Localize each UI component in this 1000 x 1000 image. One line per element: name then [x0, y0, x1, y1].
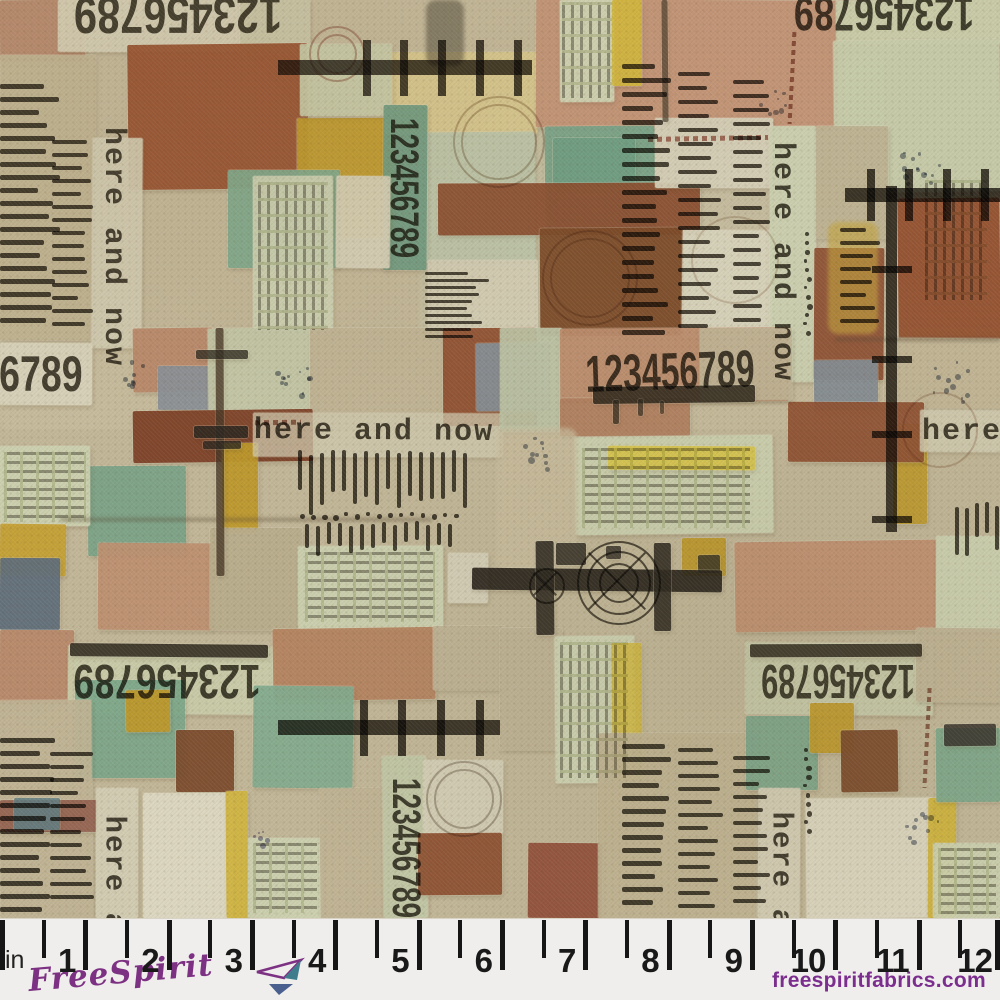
tally-stroke [622, 232, 660, 237]
fabric-patch [936, 536, 1000, 632]
fabric-patch [194, 426, 248, 438]
fabric-patch [240, 0, 310, 55]
fabric-patch [298, 546, 443, 631]
tally-stroke [678, 226, 720, 230]
tally-stroke [622, 900, 653, 905]
tally-stroke [0, 253, 40, 258]
fabric-patch [916, 628, 1000, 703]
tally-stroke [678, 826, 708, 830]
tally-stroke [733, 860, 758, 864]
tally-stroke [364, 451, 368, 497]
tally-stroke [840, 319, 879, 323]
tally-stroke [678, 198, 721, 202]
tally-stroke [678, 852, 715, 856]
tally-dot [377, 514, 382, 519]
tally-stroke [840, 293, 866, 297]
splatter-dot [530, 452, 535, 457]
fabric-patch [228, 170, 340, 268]
splatter-dot [265, 838, 269, 842]
splatter-dot [918, 152, 921, 155]
fine-print-block [925, 180, 987, 300]
tally-stroke [733, 248, 761, 252]
tally-stroke [965, 508, 969, 556]
tally-stroke [678, 212, 718, 216]
fabric-patch [698, 555, 720, 573]
compass-circle [691, 216, 779, 304]
track-tick-icon [476, 700, 484, 756]
track-bar [845, 188, 1000, 202]
tally-dot [388, 513, 393, 518]
fabric-text-stamp: 123456789 [585, 343, 756, 401]
track-tick-icon [400, 40, 408, 96]
fabric-patch [203, 441, 241, 449]
tally-dot [806, 295, 811, 300]
splatter-dot [782, 92, 786, 96]
tally-dot [806, 793, 811, 798]
fabric-patch [418, 833, 502, 895]
track-tick-icon [872, 431, 912, 438]
splatter-dot [950, 384, 956, 390]
splatter-dot [902, 166, 907, 171]
fabric-patch [598, 733, 756, 918]
splatter-dot [131, 380, 135, 384]
tally-stroke [0, 868, 40, 873]
tally-stroke [678, 114, 709, 118]
compass-circle [453, 96, 545, 188]
tally-stroke [331, 450, 335, 492]
fabric-patch [884, 338, 1000, 409]
splatter-dot [966, 369, 970, 373]
tally-stroke [50, 830, 81, 834]
fabric-patch [98, 543, 214, 631]
tally-stroke [678, 142, 713, 146]
ruler-inch-tick [833, 920, 838, 970]
fabric-patch [600, 710, 900, 918]
splatter-dot [916, 168, 920, 172]
fabric-patch [933, 843, 1000, 918]
tally-stroke [622, 887, 663, 892]
tally-stroke [425, 286, 476, 289]
ruler-inch-tick [83, 920, 88, 970]
fabric-patch [788, 402, 924, 463]
fabric-patch [382, 756, 428, 918]
tally-stroke [404, 522, 408, 542]
compass-circle [317, 34, 357, 74]
tally-stroke [733, 80, 764, 84]
tally-dot [311, 515, 316, 520]
splatter-dot [926, 829, 930, 833]
splatter-dot [944, 388, 950, 394]
tally-stroke [678, 813, 723, 817]
tally-stroke [0, 292, 51, 297]
ruler-number: 11 [853, 942, 909, 980]
fabric-patch [297, 118, 394, 238]
tally-stroke [622, 874, 655, 879]
tally-stroke [678, 787, 720, 791]
inch-ruler: in FreeSpirit freespiritfabrics.com 1234… [0, 918, 1000, 1000]
tally-stroke [622, 302, 668, 307]
tally-dot [807, 829, 812, 834]
compass-cross [588, 552, 646, 610]
track-tick-icon [363, 40, 371, 96]
splatter-dot [302, 392, 305, 395]
track-tick-icon [867, 169, 875, 221]
fabric-patch [816, 126, 889, 238]
tally-stroke [840, 280, 872, 284]
track-tick-icon [437, 700, 445, 756]
ruler-inch-tick [667, 920, 672, 970]
fabric-text-stamp: 123456789 [386, 778, 426, 918]
fabric-patch [96, 788, 138, 918]
fabric-print-collage: 1234567891234567891234567891234567894567… [0, 0, 1000, 918]
fabric-patch [560, 327, 789, 403]
tally-stroke [393, 525, 397, 551]
fabric-patch [252, 685, 353, 788]
tally-stroke [733, 164, 762, 168]
tally-stroke [678, 761, 718, 765]
fabric-patch [0, 558, 60, 630]
tally-stroke [419, 452, 423, 501]
tally-stroke [52, 153, 88, 157]
tally-stroke [622, 288, 658, 293]
tally-stroke [733, 220, 770, 224]
splatter-dot [965, 393, 970, 398]
tally-dot [803, 322, 806, 325]
tally-stroke [52, 218, 92, 222]
fabric-text-stamp: here and now [254, 416, 494, 448]
fabric-patch [928, 798, 957, 918]
tally-stroke [50, 752, 93, 756]
tally-stroke [50, 791, 78, 795]
tally-stroke [678, 891, 710, 895]
splatter-dot [141, 364, 145, 368]
tally-stroke [408, 451, 412, 496]
compass-circle [434, 769, 494, 829]
tally-stroke [50, 804, 86, 808]
tally-stroke [320, 453, 324, 506]
fabric-patch [608, 446, 755, 471]
tally-dot [355, 514, 360, 519]
tally-stroke [437, 523, 441, 545]
tally-stroke [0, 266, 47, 271]
tally-stroke [678, 184, 711, 188]
stitch-mark [788, 32, 797, 124]
tally-stroke [733, 756, 770, 760]
fabric-patch [613, 400, 619, 424]
fabric-patch [70, 643, 268, 658]
splatter-dot [946, 378, 950, 382]
splatter-dot [920, 812, 925, 817]
splatter-dot [924, 173, 927, 176]
ruler-inch-tick [417, 920, 422, 970]
tally-stroke [0, 764, 50, 769]
fabric-patch [833, 39, 1000, 193]
tally-stroke [678, 170, 717, 174]
tally-stroke [342, 450, 346, 491]
tally-stroke [50, 843, 82, 847]
tally-stroke [50, 869, 86, 873]
tally-stroke [52, 244, 84, 248]
tally-stroke [415, 521, 419, 540]
fabric-text-stamp: 123456789 [384, 118, 424, 258]
splatter-dot [934, 367, 937, 370]
fabric-patch [91, 138, 142, 348]
tally-stroke [50, 765, 84, 769]
splatter-dot [283, 377, 286, 380]
tally-stroke [733, 150, 763, 154]
splatter-dot [299, 393, 305, 399]
splatter-dot [938, 164, 941, 167]
tally-dot [399, 513, 403, 517]
tally-stroke [622, 783, 659, 788]
splatter-dot [779, 108, 785, 114]
tally-stroke [733, 276, 759, 280]
tally-stroke [0, 751, 40, 756]
fabric-patch [682, 538, 726, 576]
fabric-text-stamp: here and now [767, 142, 797, 382]
tally-stroke [622, 260, 654, 265]
tally-dot [804, 820, 808, 824]
tally-stroke [0, 279, 55, 284]
compass-circle [309, 26, 365, 82]
compass-circle [542, 230, 638, 326]
track-tick-icon [872, 516, 912, 523]
tally-stroke [0, 162, 56, 167]
tally-dot [366, 512, 370, 516]
splatter-dot [544, 461, 549, 466]
fabric-product-image: 1234567891234567891234567891234567894567… [0, 0, 1000, 1000]
fabric-patch [746, 716, 818, 790]
tally-dot [803, 784, 806, 787]
fabric-patch [536, 0, 839, 129]
tally-stroke [622, 106, 653, 111]
splatter-dot [132, 373, 136, 377]
tally-stroke [0, 214, 49, 219]
tally-stroke [622, 861, 662, 866]
tally-stroke [622, 92, 667, 97]
fabric-patch [750, 644, 922, 657]
fine-print-block [305, 552, 435, 622]
tally-stroke [678, 72, 710, 76]
splatter-dot [768, 112, 772, 116]
tally-dot [432, 514, 437, 519]
tally-stroke [425, 335, 473, 338]
track-tick-icon [398, 700, 406, 756]
tally-stroke [955, 507, 959, 554]
tally-stroke [678, 268, 718, 272]
fabric-patch [58, 0, 243, 52]
splatter-dot [911, 840, 916, 845]
fabric-patch [497, 428, 577, 570]
track-tick-icon [981, 169, 989, 221]
tally-stroke [622, 78, 671, 83]
fabric-patch [620, 55, 885, 345]
splatter-dot [523, 444, 528, 449]
track-tick-icon [360, 700, 368, 756]
fabric-patch [216, 328, 225, 576]
fabric-patch [253, 176, 333, 334]
tally-stroke [52, 270, 87, 274]
fabric-patch [661, 0, 668, 122]
track-bar [278, 720, 500, 735]
fabric-patch [319, 788, 394, 918]
tally-stroke [733, 873, 770, 877]
tally-dot [805, 313, 809, 317]
tally-stroke [426, 525, 430, 551]
ruler-number: 3 [186, 942, 242, 980]
fabric-patch [176, 730, 234, 792]
tally-dot [807, 811, 813, 817]
tally-stroke [840, 306, 875, 310]
compass-cross [533, 572, 557, 596]
splatter-dot [911, 157, 915, 161]
fabric-patch [419, 132, 535, 263]
fabric-patch [556, 543, 586, 565]
tally-stroke [448, 524, 452, 548]
tally-stroke [425, 293, 479, 296]
fabric-patch [273, 627, 436, 701]
tally-stroke [338, 523, 342, 546]
tally-stroke [50, 778, 84, 782]
tally-stroke [733, 234, 759, 238]
tally-stroke [733, 834, 767, 838]
fabric-patch [758, 788, 801, 918]
fabric-patch [810, 703, 854, 753]
tally-stroke [452, 450, 456, 492]
splatter-dot [937, 820, 940, 823]
tally-stroke [316, 526, 320, 555]
fine-print-block [258, 182, 328, 330]
splatter-dot [777, 98, 779, 100]
tally-stroke [0, 110, 39, 115]
tally-stroke [733, 899, 766, 903]
tally-stroke [0, 790, 52, 795]
ruler-inch-tick [750, 920, 755, 970]
tally-stroke [622, 316, 653, 321]
tally-dot [805, 250, 810, 255]
tally-stroke [733, 290, 758, 294]
fabric-patch [660, 401, 664, 414]
fabric-patch [426, 0, 464, 66]
track-bar [886, 186, 897, 532]
splatter-dot [130, 384, 135, 389]
fabric-patch [428, 260, 538, 338]
fabric-patch [611, 643, 643, 780]
tally-stroke [0, 881, 43, 886]
fabric-patch [0, 700, 93, 918]
tally-stroke [678, 865, 710, 869]
splatter-dot [916, 167, 919, 170]
tally-stroke [840, 254, 873, 258]
tally-stroke [0, 894, 50, 899]
fabric-text-stamp: 123456789 [74, 0, 282, 40]
tally-stroke [733, 108, 769, 112]
ruler-number: 8 [603, 942, 659, 980]
tally-stroke [430, 452, 434, 499]
splatter-dot [905, 825, 909, 829]
compass-circle [461, 104, 537, 180]
tally-stroke [50, 856, 91, 860]
tally-dot [806, 775, 811, 780]
fabric-patch [0, 343, 92, 406]
track-tick-icon [438, 40, 446, 96]
fabric-patch [433, 626, 505, 690]
splatter-dot [306, 367, 309, 370]
tally-stroke [622, 796, 669, 801]
ruler-number: 1 [19, 942, 75, 980]
fabric-patch [545, 126, 656, 233]
tally-dot [454, 514, 459, 519]
fabric-patch [920, 410, 1000, 452]
tally-stroke [733, 318, 761, 322]
ruler-inch-tick [500, 920, 505, 970]
compass-circle [529, 568, 565, 604]
fabric-patch [560, 398, 690, 437]
tally-stroke [0, 175, 60, 180]
tally-stroke [678, 878, 718, 882]
tally-stroke [995, 506, 999, 549]
fabric-patch [225, 791, 248, 918]
splatter-dot [528, 457, 535, 464]
tally-stroke [678, 839, 718, 843]
tally-stroke [425, 328, 471, 331]
fine-print-block [4, 452, 86, 522]
fabric-patch [574, 435, 773, 536]
tally-stroke [622, 330, 665, 335]
tally-stroke [733, 782, 759, 786]
splatter-dot [262, 831, 264, 833]
fabric-patch [612, 0, 642, 86]
tally-stroke [441, 452, 445, 499]
tally-stroke [425, 321, 482, 324]
tally-stroke [52, 166, 82, 170]
tally-dot [804, 757, 808, 761]
splatter-dot [961, 397, 963, 399]
splatter-dot [280, 381, 284, 385]
splatter-dot [914, 818, 918, 822]
tally-stroke [622, 809, 666, 814]
splatter-dot [773, 110, 779, 116]
tally-stroke [622, 744, 665, 749]
tally-stroke [0, 842, 50, 847]
fabric-patch [835, 338, 1000, 341]
tally-stroke [733, 769, 770, 773]
fabric-patch [654, 543, 671, 631]
tally-stroke [0, 803, 50, 808]
fabric-patch [300, 44, 392, 116]
tally-stroke [0, 907, 42, 912]
tally-stroke [622, 848, 661, 853]
tally-stroke [0, 188, 38, 193]
tally-stroke [50, 895, 94, 899]
fabric-patch [207, 327, 312, 416]
ruler-number: 10 [769, 942, 825, 980]
tally-stroke [678, 128, 718, 132]
fabric-patch [0, 0, 85, 62]
tally-stroke [298, 450, 302, 490]
tally-stroke [0, 240, 44, 245]
fabric-patch [528, 843, 603, 918]
fabric-patch [700, 328, 792, 401]
tally-stroke [0, 97, 59, 102]
ruler-number: 2 [103, 942, 159, 980]
ruler-inch-tick [250, 920, 255, 970]
tally-dot [804, 259, 808, 263]
tally-stroke [52, 140, 87, 144]
fabric-patch [420, 90, 570, 350]
splatter-dot [287, 375, 290, 378]
tally-stroke [622, 246, 655, 251]
